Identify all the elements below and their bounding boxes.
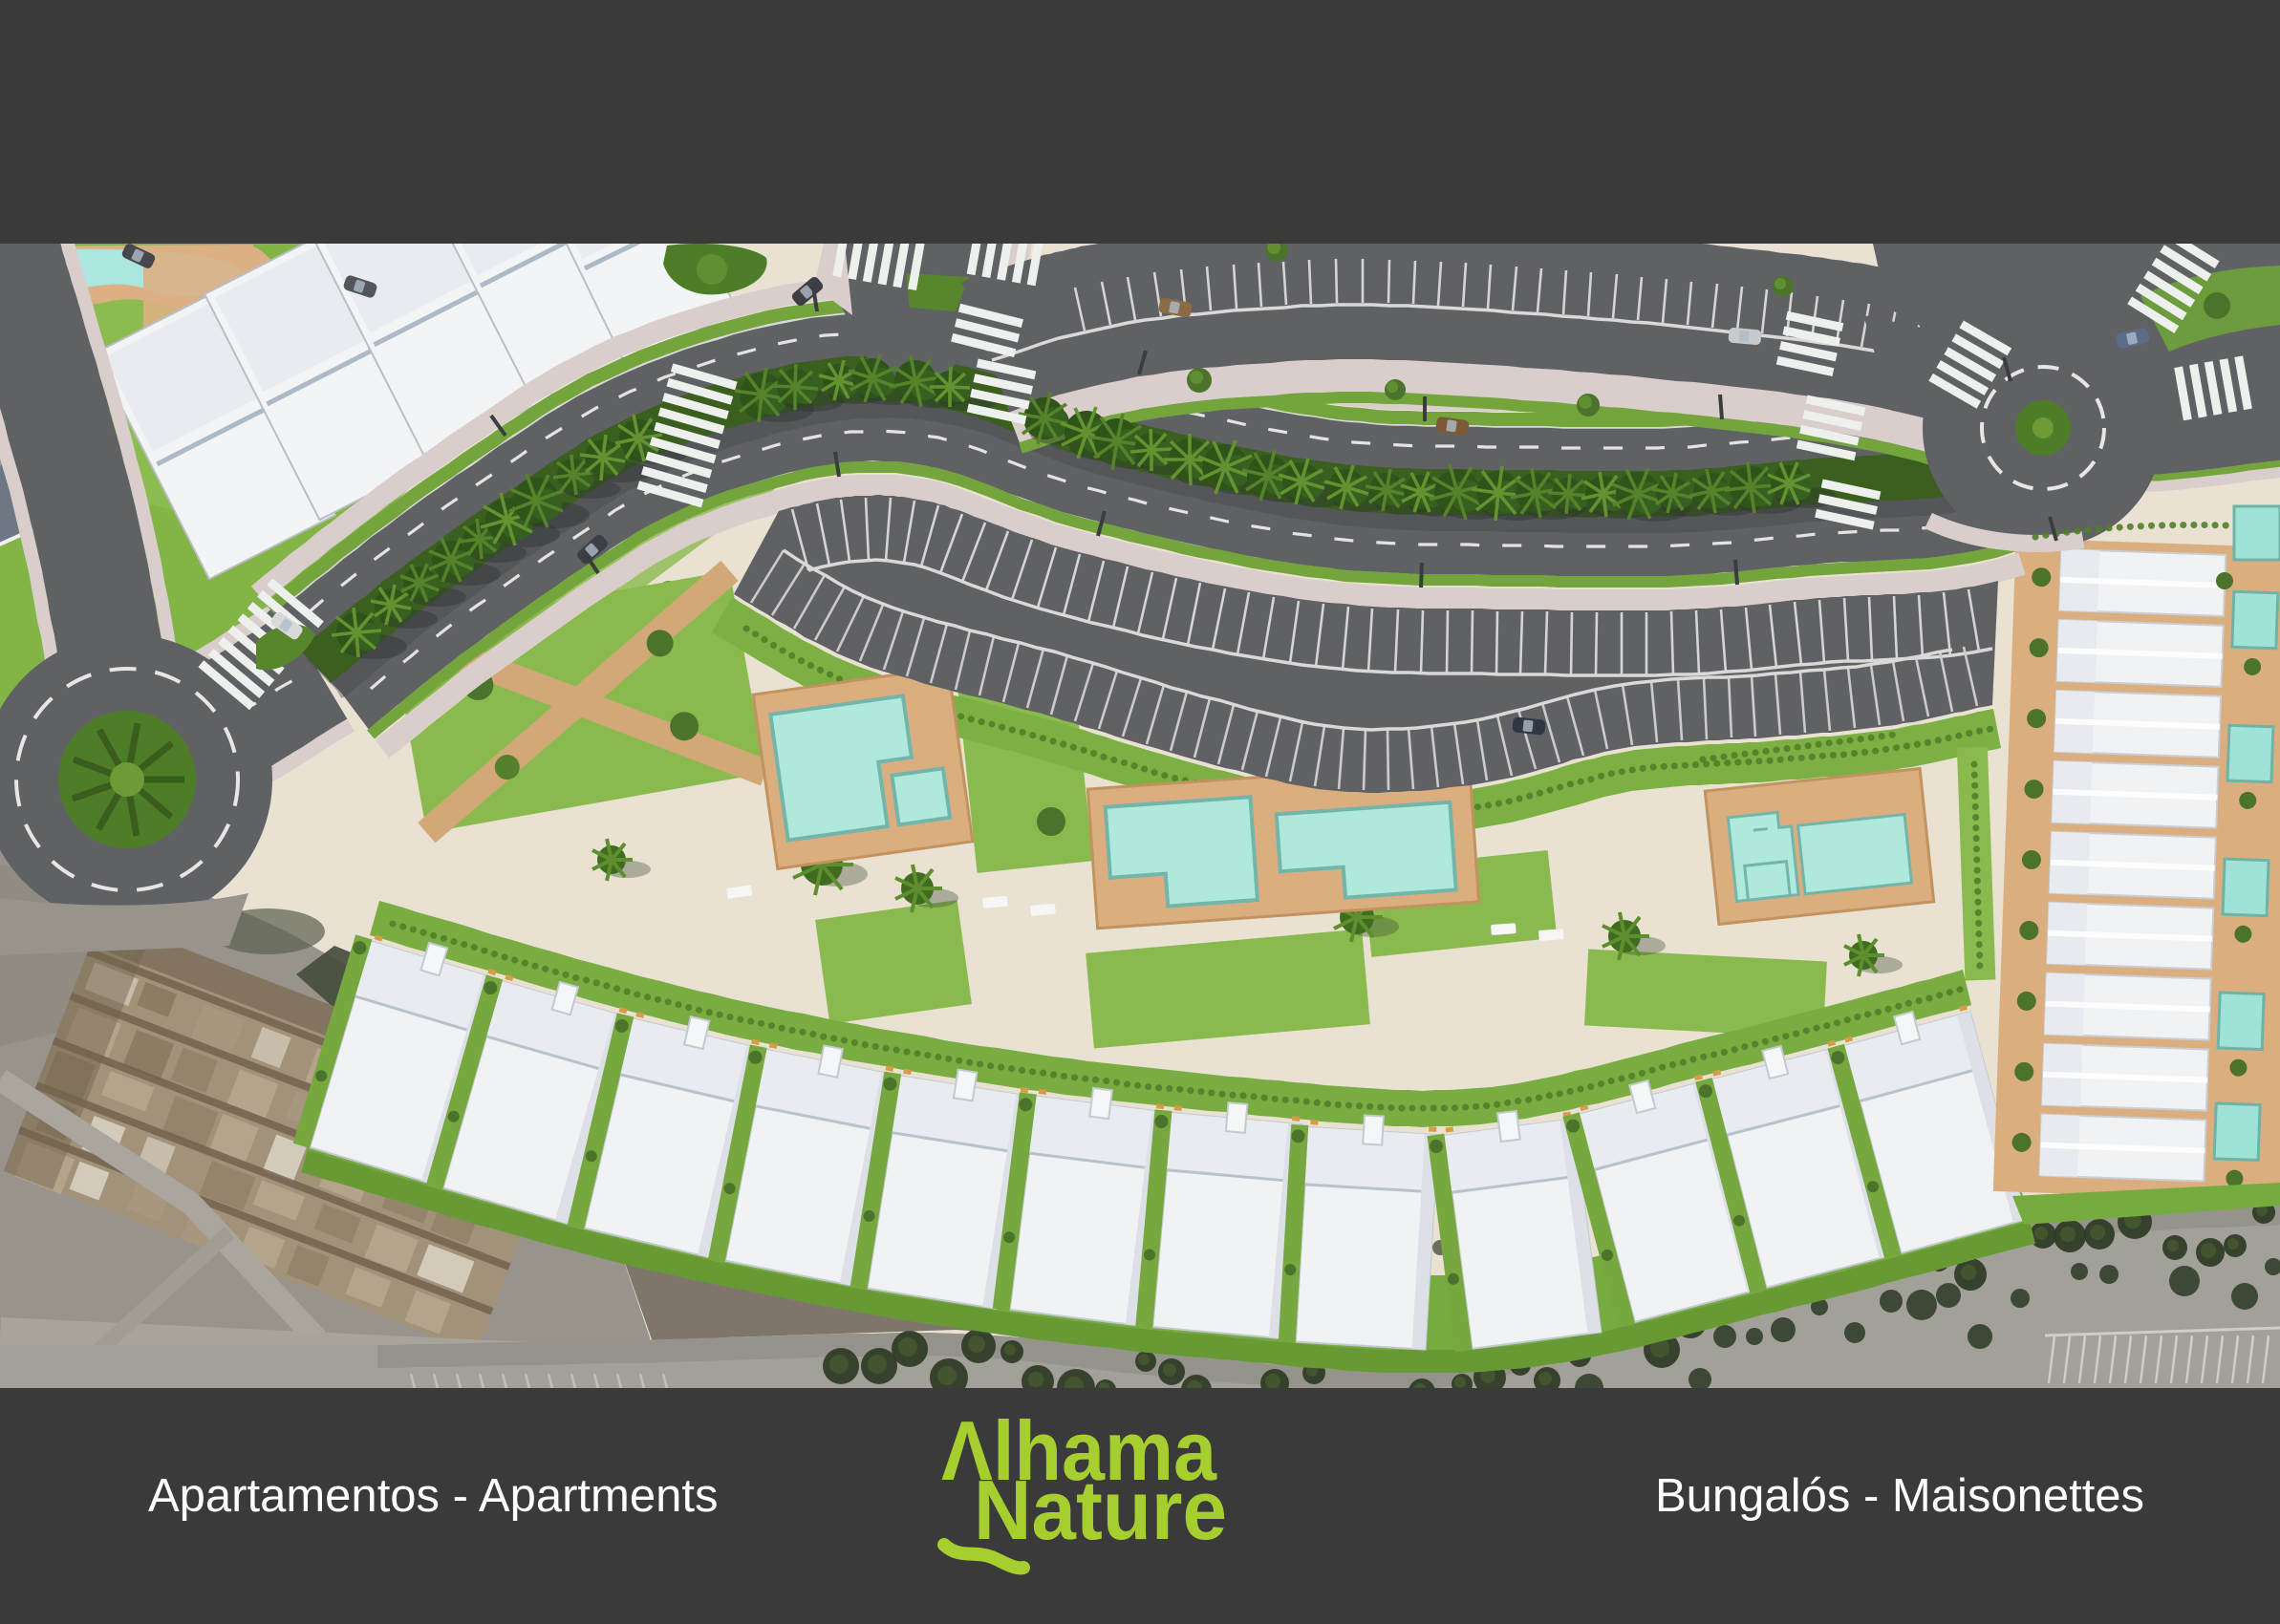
svg-text:Apartamentos - Apartments: Apartamentos - Apartments bbox=[148, 1470, 718, 1522]
svg-text:Bungalós - Maisonettes: Bungalós - Maisonettes bbox=[1655, 1470, 2144, 1522]
svg-text:Nature: Nature bbox=[974, 1463, 1227, 1557]
